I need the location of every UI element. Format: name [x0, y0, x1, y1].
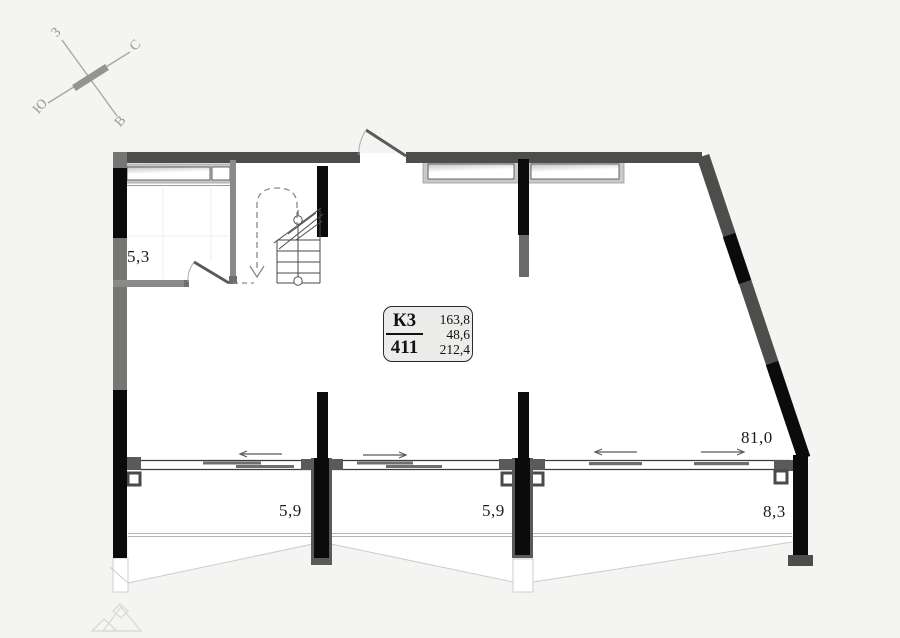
area-value-2: 48,6: [429, 327, 470, 342]
dim-label-balcony-right: 8,3: [763, 502, 786, 522]
dim-label-terrace: 81,0: [741, 428, 773, 448]
floor-area: [113, 153, 806, 592]
block-label: К3: [384, 311, 425, 330]
area-value-3: 212,4: [429, 342, 470, 357]
entrance-door: [359, 130, 406, 156]
unit-block-and-number: К3 411: [384, 311, 425, 357]
dim-label-room-5-3: 5,3: [127, 247, 150, 267]
mountains-logo-icon: [92, 604, 141, 631]
area-value-1: 163,8: [429, 312, 470, 327]
dim-label-balcony-mid: 5,9: [482, 501, 505, 521]
fraction-bar: [386, 333, 423, 335]
unit-info-card: К3 411 163,8 48,6 212,4: [383, 306, 473, 362]
unit-number: 411: [384, 338, 425, 357]
dim-label-balcony-left: 5,9: [279, 501, 302, 521]
floor-plan-page: З С Ю В 5,3 5,9 5,9 8,3 81,0 К3 411 163,…: [0, 0, 900, 638]
compass-rose: [48, 40, 130, 116]
unit-areas: 163,8 48,6 212,4: [429, 312, 472, 357]
